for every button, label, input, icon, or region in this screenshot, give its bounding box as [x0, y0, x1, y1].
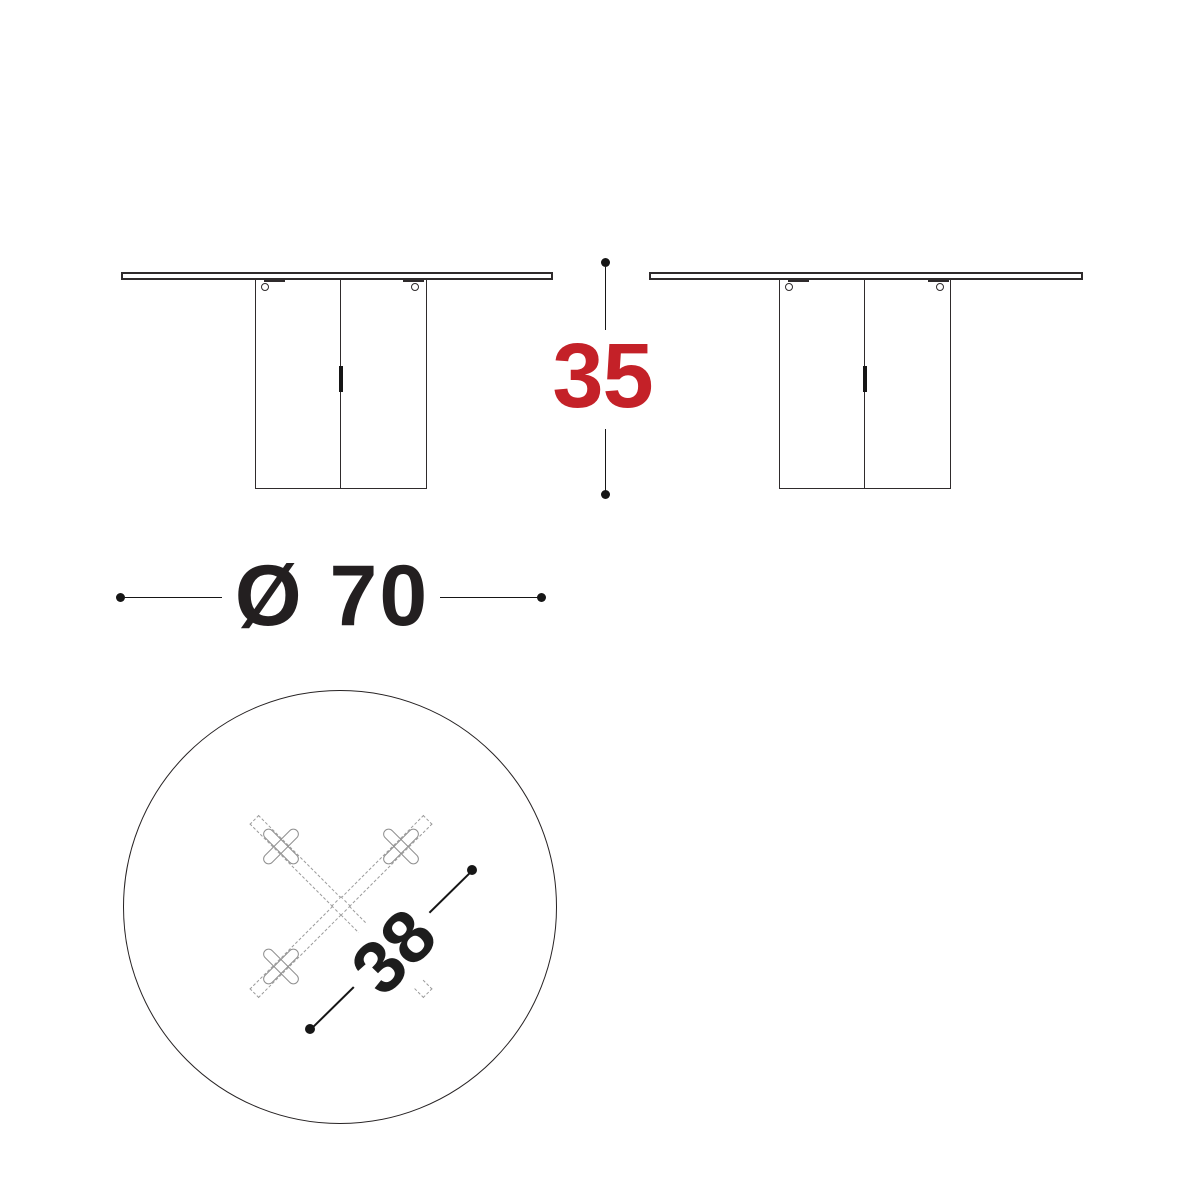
pedestal-joint-mark [863, 366, 867, 392]
dimension-endpoint-dot [305, 1024, 315, 1034]
cam-lock-icon [403, 280, 424, 282]
dimension-endpoint-dot [601, 490, 610, 499]
cam-lock-icon [785, 283, 793, 291]
cam-lock-icon [788, 280, 809, 282]
cam-lock-icon [928, 280, 949, 282]
dimension-line [125, 597, 222, 598]
dimension-line [440, 597, 538, 598]
cam-lock-icon [936, 283, 944, 291]
cam-lock-icon [411, 283, 419, 291]
dimension-endpoint-dot [116, 593, 125, 602]
dimension-endpoint-dot [601, 258, 610, 267]
technical-drawing-canvas: 35 Ø 70 38 [0, 0, 1182, 1182]
diameter-dimension-label: Ø 70 [226, 552, 438, 640]
pedestal-joint-mark [339, 366, 343, 392]
cam-lock-icon [261, 283, 269, 291]
cam-lock-icon [264, 280, 285, 282]
dimension-endpoint-dot [537, 593, 546, 602]
dimension-line [605, 267, 606, 330]
dimension-line [605, 429, 606, 491]
dimension-endpoint-dot [467, 865, 477, 875]
height-dimension-label: 35 [540, 331, 665, 421]
